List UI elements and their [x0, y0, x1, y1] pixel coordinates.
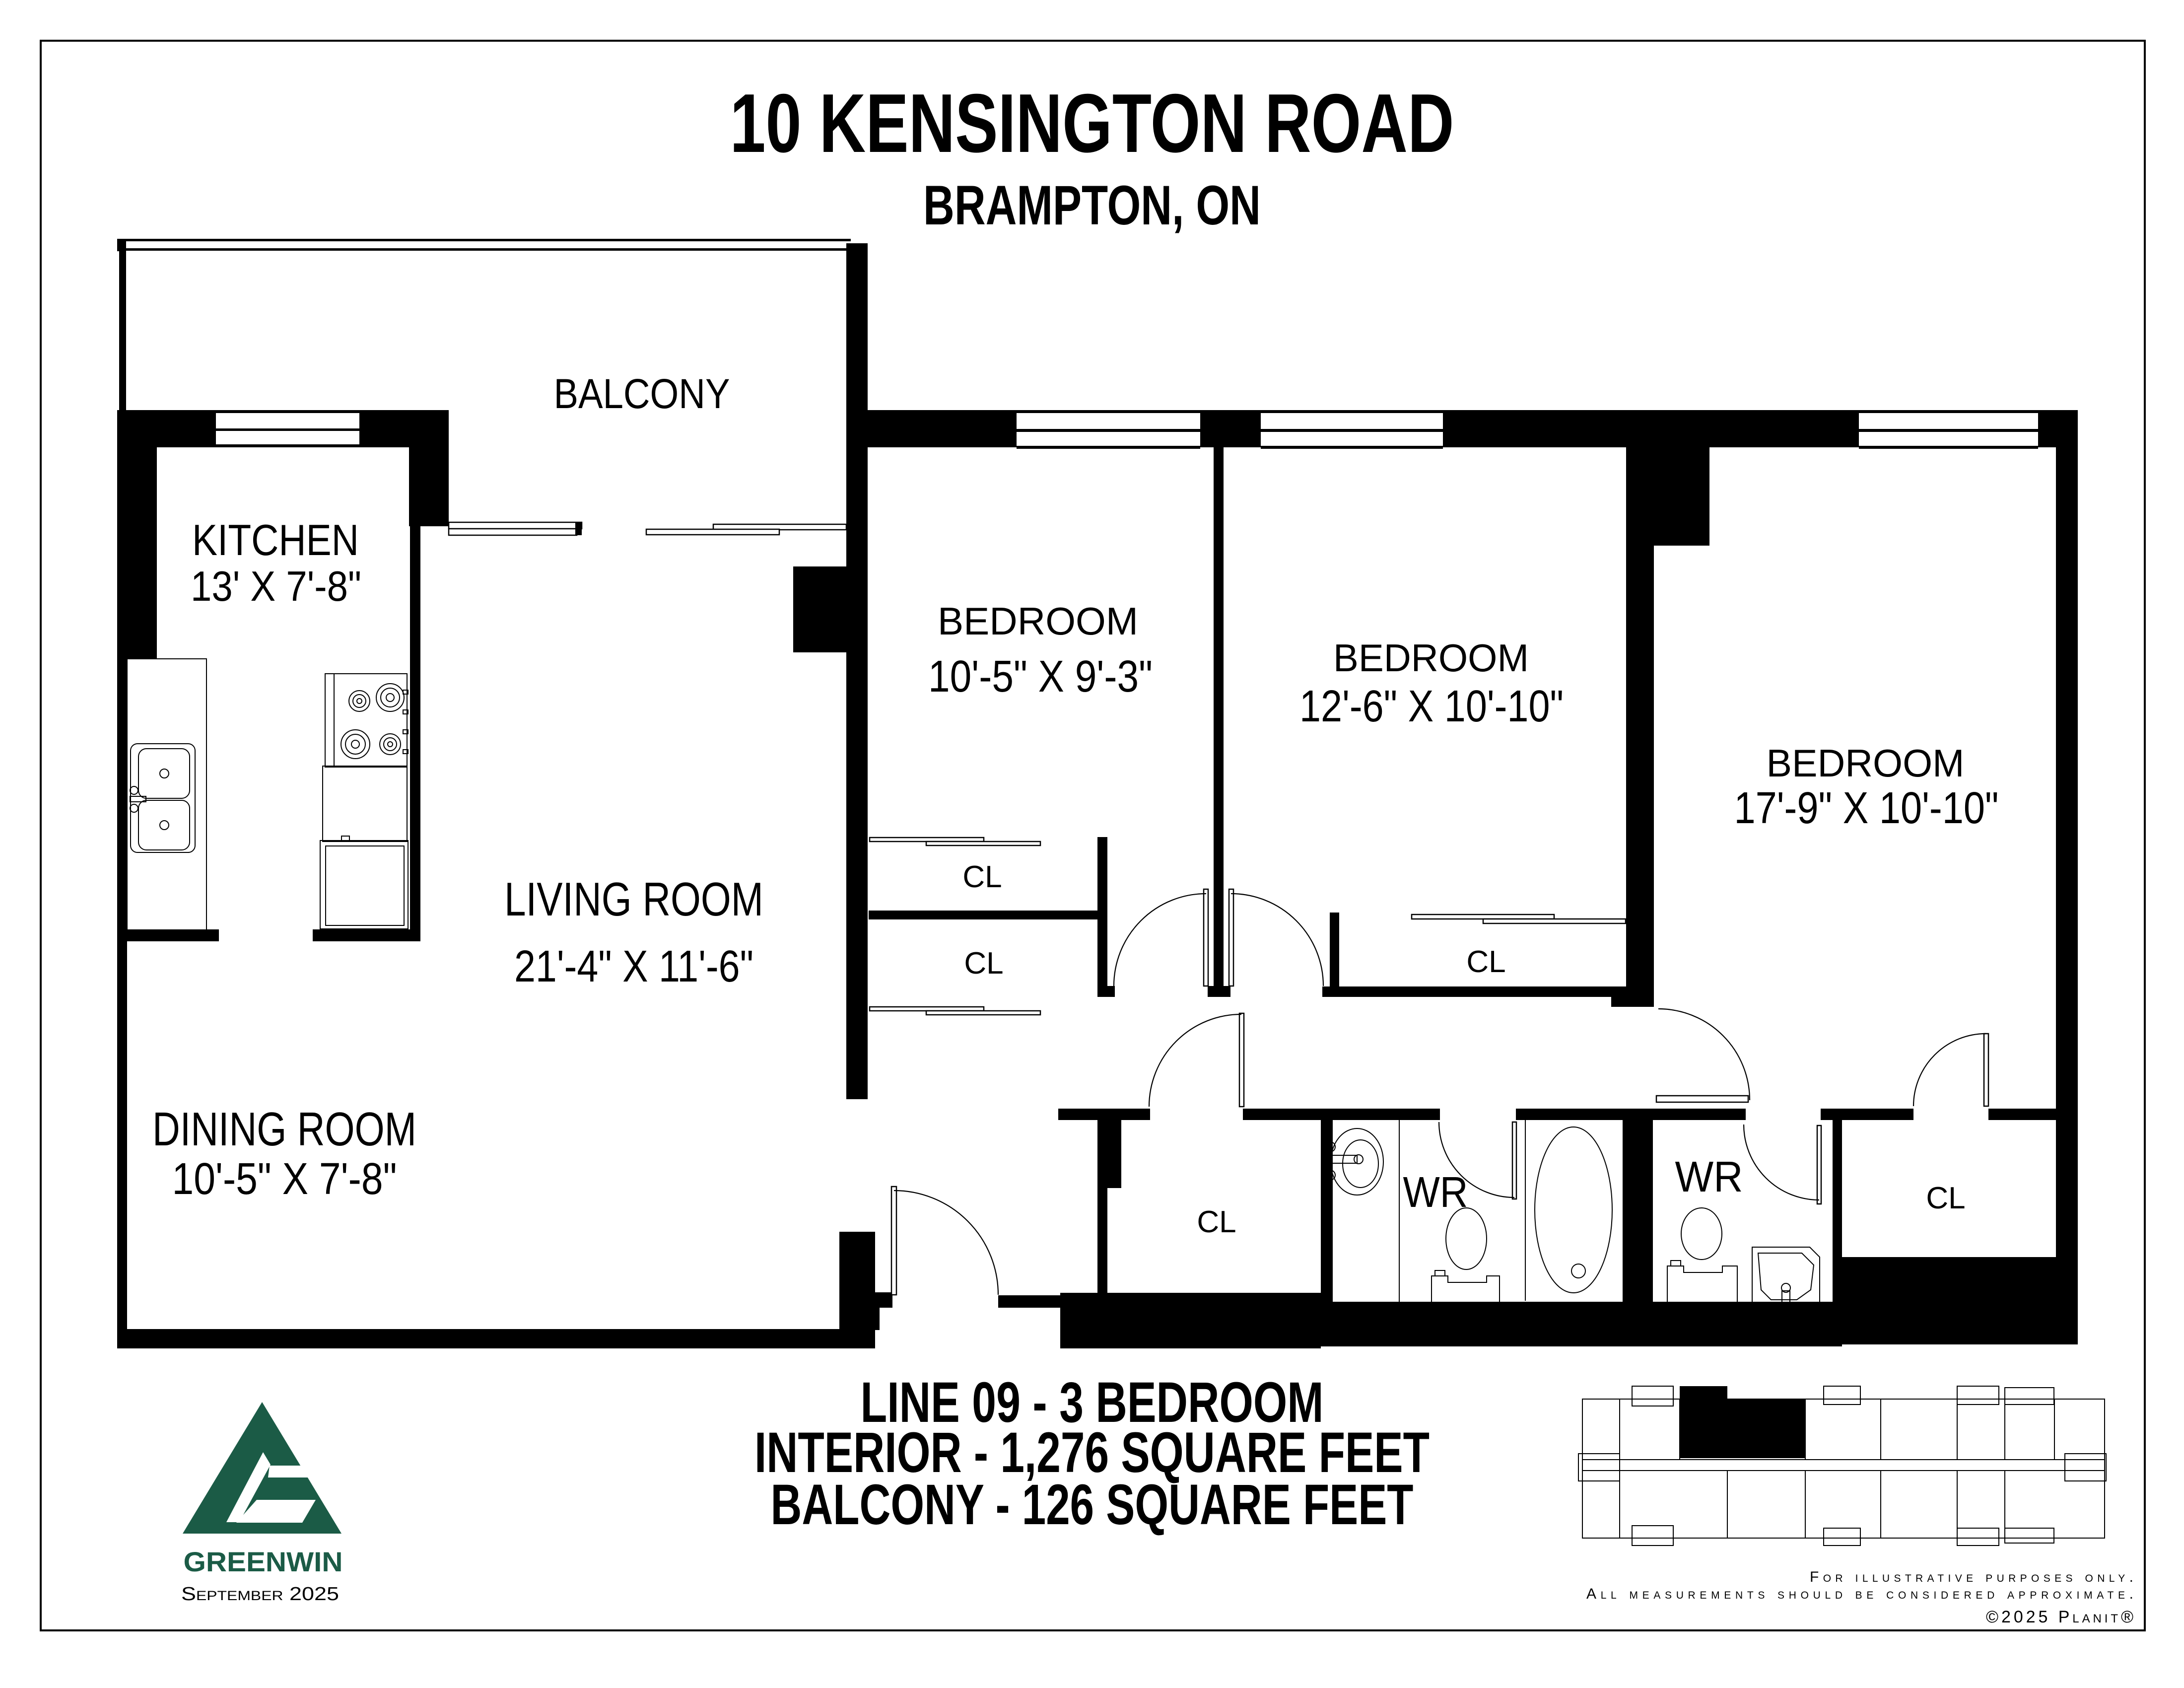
svg-text:KITCHEN: KITCHEN: [192, 515, 359, 564]
svg-text:17'-9" X 10'-10": 17'-9" X 10'-10": [1734, 783, 1999, 833]
svg-text:10'-5" X 9'-3": 10'-5" X 9'-3": [928, 652, 1153, 702]
svg-text:©2025 Planit®: ©2025 Planit®: [1986, 1608, 2133, 1626]
svg-text:DINING ROOM: DINING ROOM: [152, 1103, 416, 1156]
svg-text:LIVING ROOM: LIVING ROOM: [504, 873, 763, 926]
svg-text:12'-6" X 10'-10": 12'-6" X 10'-10": [1299, 682, 1564, 731]
svg-text:GREENWIN: GREENWIN: [184, 1546, 343, 1577]
svg-text:10'-5" X 7'-8": 10'-5" X 7'-8": [172, 1154, 397, 1204]
svg-text:WR: WR: [1403, 1168, 1468, 1216]
svg-text:September 2025: September 2025: [181, 1584, 339, 1605]
svg-text:CL: CL: [964, 946, 1003, 981]
svg-text:WR: WR: [1675, 1153, 1743, 1201]
svg-text:13' X 7'-8": 13' X 7'-8": [191, 563, 361, 610]
svg-text:BRAMPTON, ON: BRAMPTON, ON: [923, 174, 1261, 236]
svg-text:BALCONY - 126 SQUARE FEET: BALCONY - 126 SQUARE FEET: [771, 1473, 1414, 1537]
svg-text:21'-4" X 11'-6": 21'-4" X 11'-6": [514, 942, 753, 991]
svg-text:CL: CL: [1197, 1205, 1236, 1239]
svg-text:CL: CL: [1466, 945, 1505, 979]
svg-text:CL: CL: [962, 860, 1002, 894]
svg-text:10 KENSINGTON ROAD: 10 KENSINGTON ROAD: [730, 76, 1454, 170]
svg-text:CL: CL: [1926, 1181, 1965, 1215]
svg-text:BALCONY: BALCONY: [554, 370, 730, 417]
svg-text:BEDROOM: BEDROOM: [1767, 741, 1965, 785]
svg-text:BEDROOM: BEDROOM: [1333, 636, 1529, 680]
svg-text:BEDROOM: BEDROOM: [938, 599, 1138, 643]
